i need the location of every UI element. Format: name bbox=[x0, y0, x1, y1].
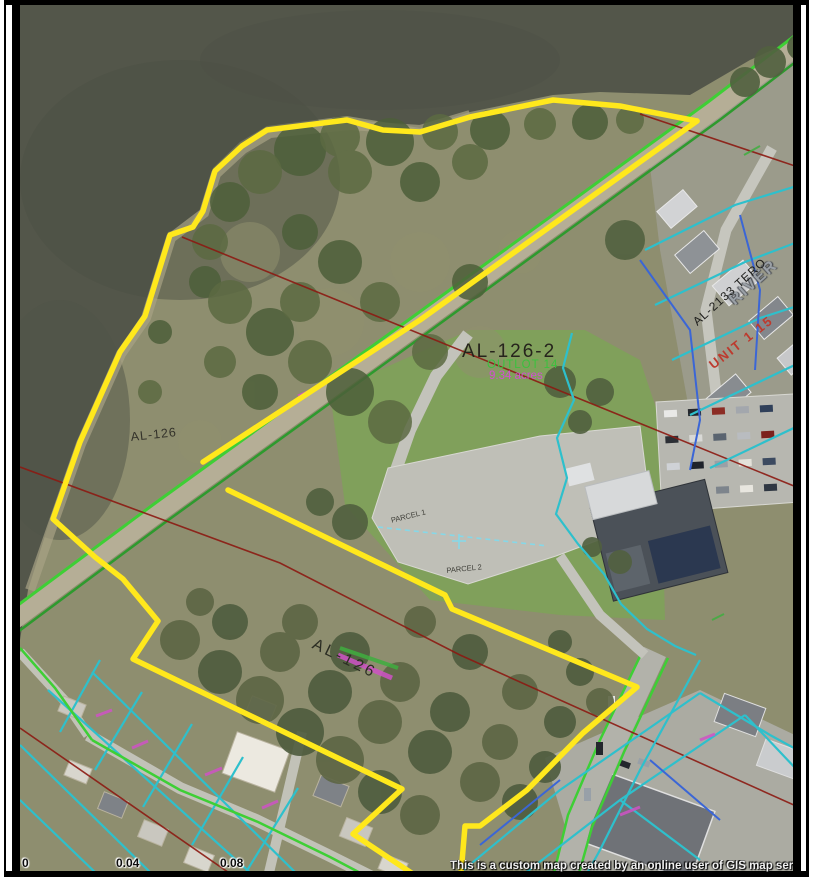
map-border-right-outer bbox=[806, 0, 809, 877]
map-border-right-inner bbox=[793, 0, 801, 877]
attribution-text: This is a custom map created by an onlin… bbox=[450, 860, 793, 872]
map-border-top bbox=[4, 0, 809, 5]
scale-bar-tick: 0 bbox=[22, 856, 29, 870]
custom-gis-map-page: AL-126-2 OUTLOT 14 9.34 acres AL-126 AL-… bbox=[0, 0, 816, 877]
aerial-map-canvas[interactable] bbox=[0, 0, 816, 877]
scale-bar-tick: 0.04 bbox=[116, 856, 139, 870]
map-border-left-outer bbox=[4, 0, 6, 877]
scale-bar-tick: 0.08 bbox=[220, 856, 243, 870]
map-border-left-inner bbox=[12, 0, 20, 877]
